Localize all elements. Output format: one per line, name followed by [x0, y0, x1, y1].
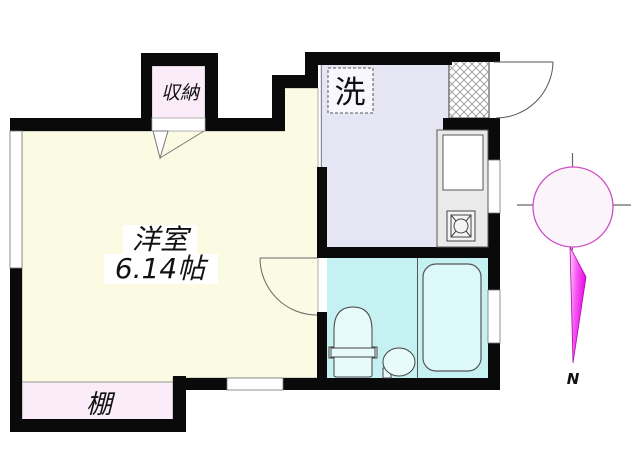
shelf-label: 棚 [86, 390, 116, 420]
window-bottom [227, 378, 283, 390]
window-kitchen-right [488, 160, 500, 213]
closet-label: 収納 [161, 82, 201, 104]
toilet-icon [329, 307, 377, 377]
window-left [10, 131, 22, 268]
entrance-genkan [449, 60, 489, 118]
main-room-size: 6.14帖 [115, 252, 209, 285]
north-label: N [567, 370, 580, 388]
compass-circle [533, 167, 613, 247]
compass: N [517, 153, 631, 388]
floor-plan-svg: N 収納 洗 洋室 6.14帖 棚 [0, 0, 640, 463]
bathtub-icon [423, 264, 481, 371]
closet-opening [152, 118, 205, 131]
entrance-door-arc [494, 62, 553, 118]
laundry-label: 洗 [335, 75, 366, 111]
sink [443, 135, 483, 190]
window-bath-right [488, 290, 500, 343]
stove-icon [447, 211, 475, 241]
kitchen-counter [437, 130, 488, 247]
north-needle [570, 247, 586, 363]
floor-plan-image: N 収納 洗 洋室 6.14帖 棚 [0, 0, 640, 463]
